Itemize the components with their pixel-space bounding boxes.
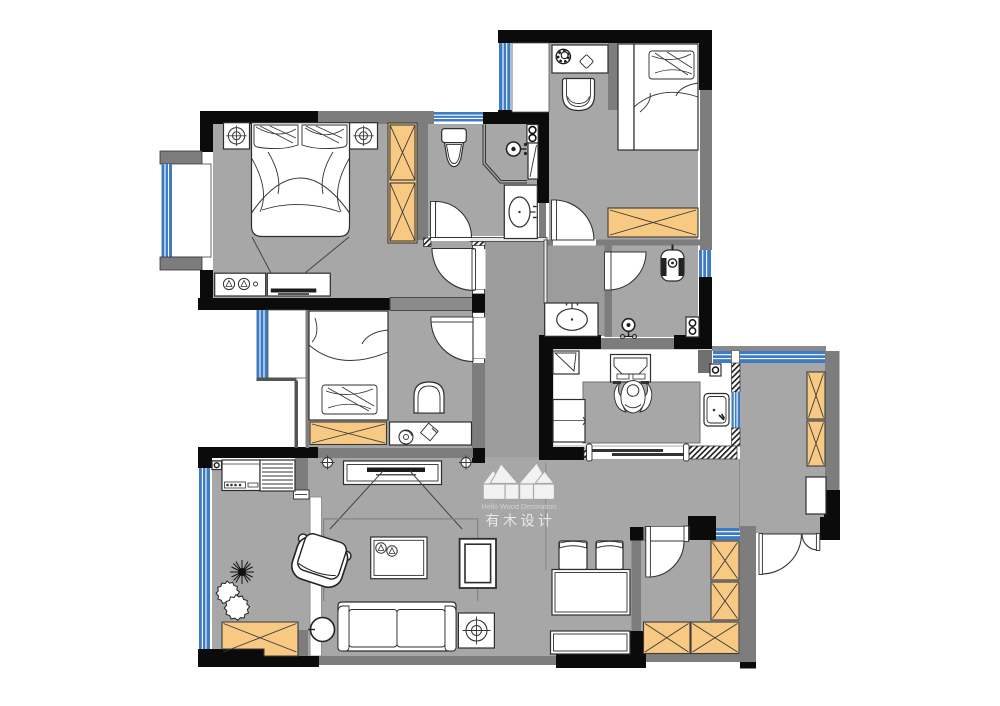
svg-text:Hello Wood Decoration: Hello Wood Decoration <box>481 502 556 511</box>
svg-text:有木设计: 有木设计 <box>486 513 556 529</box>
